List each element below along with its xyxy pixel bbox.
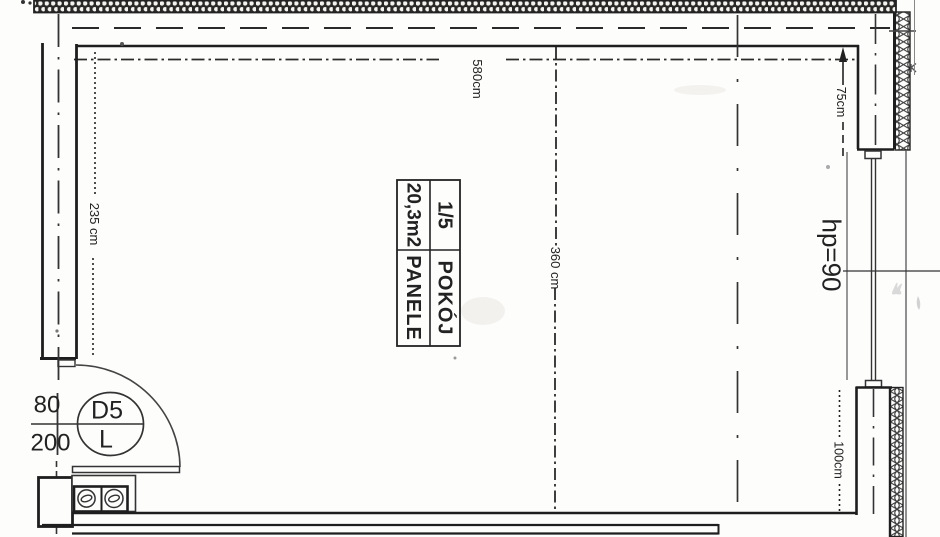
svg-text:360 cm: 360 cm (548, 247, 563, 290)
svg-text:20,3m2: 20,3m2 (403, 183, 424, 247)
svg-text:100cm: 100cm (832, 441, 846, 479)
svg-text:PANELE: PANELE (402, 255, 424, 341)
svg-text:235 cm: 235 cm (87, 203, 102, 246)
svg-text:L: L (99, 426, 113, 454)
svg-text:D5: D5 (91, 397, 123, 425)
svg-text:580cm: 580cm (470, 59, 485, 99)
svg-text:1/5: 1/5 (434, 201, 456, 229)
svg-text:80: 80 (34, 392, 61, 419)
svg-text:200: 200 (30, 430, 70, 457)
svg-text:POKÓJ: POKÓJ (434, 260, 458, 335)
svg-text:75cm: 75cm (834, 87, 848, 118)
svg-text:hp=90: hp=90 (817, 218, 847, 291)
